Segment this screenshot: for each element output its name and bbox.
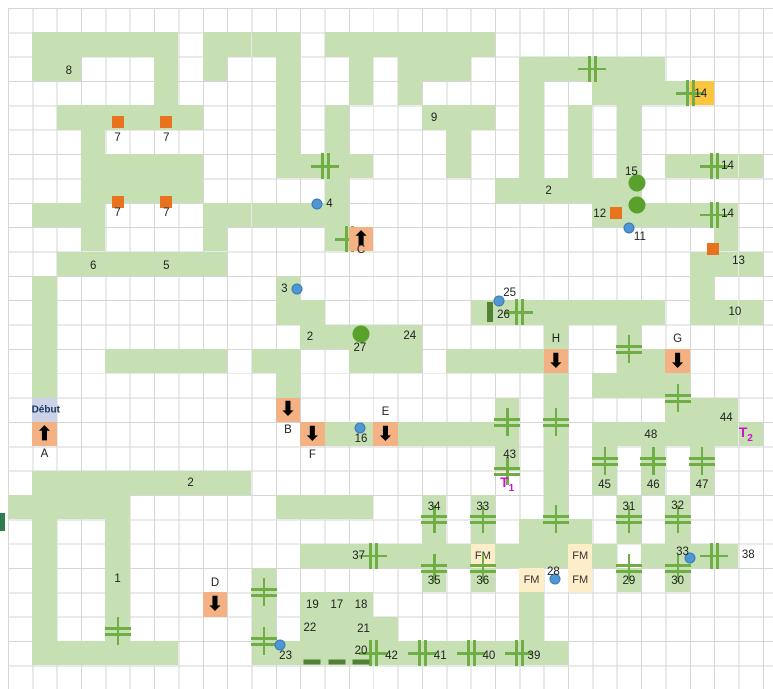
corridor-cell: [617, 422, 641, 446]
corridor-cell: [178, 154, 202, 178]
corridor-cell: [592, 300, 616, 324]
corridor-cell: [32, 57, 56, 81]
corridor-cell: [130, 252, 154, 276]
map-label-32: 32: [671, 500, 684, 512]
corridor-cell: [276, 373, 300, 397]
map-label-c: C: [357, 244, 365, 256]
corridor-cell: [446, 349, 470, 373]
map-label-27: 27: [353, 342, 366, 354]
map-label-g: G: [673, 333, 682, 345]
corridor-cell: [471, 105, 495, 129]
map-label-11: 11: [634, 231, 646, 243]
map-label-39: 39: [528, 650, 541, 662]
map-label-47: 47: [696, 479, 709, 491]
map-label-29: 29: [623, 575, 636, 587]
corridor-cell: [544, 57, 568, 81]
corridor-cell: [32, 325, 56, 349]
dungeon-map: FMFMFMFM ⬆⬇⬆⬇⬇⬇⬇⬇ 8977776543215121114141…: [0, 0, 773, 689]
corridor-cell: [446, 32, 470, 56]
corridor-cell: [325, 130, 349, 154]
corridor-cell: [568, 519, 592, 543]
corridor-cell: [398, 544, 422, 568]
corridor-cell: [641, 373, 665, 397]
corridor-cell: [349, 32, 373, 56]
map-label-28: 28: [547, 566, 560, 578]
map-label-10: 10: [728, 306, 741, 318]
corridor-cell: [32, 519, 56, 543]
door-icon: [250, 578, 278, 606]
map-label-7: 7: [163, 132, 169, 144]
corridor-cell: [105, 32, 129, 56]
corridor-cell: [32, 592, 56, 616]
corridor-cell: [32, 641, 56, 665]
stair-arrow-H: ⬇: [544, 349, 568, 373]
corridor-cell: [519, 349, 543, 373]
corridor-cell: [471, 422, 495, 446]
corridor-cell: [641, 57, 665, 81]
map-label-3: 3: [281, 283, 287, 295]
corridor-cell: [81, 203, 105, 227]
map-label-31: 31: [623, 501, 636, 513]
map-label-36: 36: [476, 575, 489, 587]
corridor-cell: [105, 544, 129, 568]
corridor-cell: [130, 349, 154, 373]
corridor-cell: [32, 544, 56, 568]
map-label-14: 14: [721, 160, 734, 172]
corridor-cell: [617, 105, 641, 129]
map-label-16: 16: [355, 433, 368, 445]
map-label-33: 33: [476, 501, 489, 513]
map-label-40: 40: [483, 650, 496, 662]
corridor-cell: [81, 495, 105, 519]
corridor-cell: [739, 300, 763, 324]
corridor-cell: [81, 154, 105, 178]
stair-arrow-F: ⬇: [300, 422, 324, 446]
corridor-cell: [276, 32, 300, 56]
corridor-cell: [325, 325, 349, 349]
corridor-cell: [203, 349, 227, 373]
map-label-13: 13: [732, 255, 745, 267]
corridor-cell: [203, 32, 227, 56]
corridor-cell: [471, 349, 495, 373]
corridor-cell: [519, 57, 543, 81]
map-label-2: 2: [307, 331, 313, 343]
orange-square-icon: [707, 243, 719, 255]
corridor-cell: [227, 471, 251, 495]
arrow-down-icon: ⬇: [304, 425, 320, 444]
map-label-18: 18: [355, 599, 368, 611]
map-label-h: H: [552, 333, 560, 345]
map-label-7: 7: [163, 207, 169, 219]
map-label-46: 46: [647, 479, 660, 491]
corridor-cell: [446, 57, 470, 81]
corridor-cell: [398, 81, 422, 105]
corridor-cell: [495, 349, 519, 373]
door-icon: [664, 384, 692, 412]
teleport-label-1: T1: [500, 474, 514, 494]
corridor-cell: [227, 203, 251, 227]
fm-cell: FM: [568, 544, 592, 568]
map-label-8: 8: [66, 65, 72, 77]
door-icon: [104, 617, 132, 645]
corridor-cell: [130, 154, 154, 178]
corridor-cell: [568, 105, 592, 129]
corridor-cell: [203, 252, 227, 276]
corridor-cell: [446, 544, 470, 568]
corridor-cell: [325, 422, 349, 446]
door-icon: [591, 447, 619, 475]
corridor-cell: [349, 154, 373, 178]
corridor-cell: [276, 300, 300, 324]
corridor-cell: [81, 641, 105, 665]
map-label-12: 12: [593, 208, 606, 220]
map-label-44: 44: [720, 412, 733, 424]
corridor-cell: [641, 81, 665, 105]
corridor-cell: [617, 57, 641, 81]
corridor-cell: [81, 178, 105, 202]
door-icon: [457, 639, 485, 667]
teleport-label-2: T2: [739, 424, 753, 444]
door-icon: [700, 542, 728, 570]
fm-cell: FM: [519, 568, 543, 592]
orange-square-icon: [610, 207, 622, 219]
corridor-cell: [617, 130, 641, 154]
dark-green-bar: [328, 659, 345, 664]
corridor-cell: [32, 495, 56, 519]
stair-arrow-B: ⬇: [276, 398, 300, 422]
corridor-cell: [349, 57, 373, 81]
corridor-cell: [276, 57, 300, 81]
corridor-cell: [446, 130, 470, 154]
map-label-20: 20: [355, 645, 368, 657]
corridor-cell: [544, 300, 568, 324]
corridor-cell: [81, 130, 105, 154]
corridor-cell: [641, 349, 665, 373]
corridor-cell: [300, 495, 324, 519]
map-label-7: 7: [114, 132, 120, 144]
corridor-cell: [568, 300, 592, 324]
corridor-cell: [130, 471, 154, 495]
corridor-cell: [81, 32, 105, 56]
map-label-24: 24: [403, 330, 416, 342]
corridor-cell: [714, 422, 738, 446]
map-label-7: 7: [114, 207, 120, 219]
map-label-14: 14: [694, 88, 707, 100]
dark-green-bar: [304, 659, 321, 664]
corridor-cell: [325, 617, 349, 641]
corridor-cell: [57, 495, 81, 519]
corridor-cell: [276, 495, 300, 519]
stair-arrow-G: ⬇: [665, 349, 689, 373]
door-icon: [639, 447, 667, 475]
corridor-cell: [203, 227, 227, 251]
map-label-a: A: [41, 448, 49, 460]
corridor-cell: [690, 300, 714, 324]
corridor-cell: [495, 544, 519, 568]
corridor-cell: [519, 130, 543, 154]
corridor-cell: [690, 398, 714, 422]
corridor-cell: [105, 252, 129, 276]
corridor-cell: [471, 32, 495, 56]
corridor-cell: [422, 32, 446, 56]
corridor-cell: [57, 471, 81, 495]
arrow-down-icon: ⬇: [207, 595, 223, 614]
corridor-cell: [300, 544, 324, 568]
corridor-cell: [32, 276, 56, 300]
corridor-cell: [519, 617, 543, 641]
corridor-cell: [252, 349, 276, 373]
corridor-cell: [544, 641, 568, 665]
map-label-17: 17: [330, 599, 343, 611]
map-label-37: 37: [352, 550, 365, 562]
corridor-cell: [32, 300, 56, 324]
corridor-cell: [373, 32, 397, 56]
map-label-22: 22: [304, 622, 317, 634]
map-label-d: D: [211, 577, 219, 589]
corridor-cell: [519, 105, 543, 129]
corridor-cell: [32, 32, 56, 56]
corridor-cell: [349, 495, 373, 519]
map-label-9: 9: [431, 112, 437, 124]
corridor-cell: [276, 81, 300, 105]
event-dot-icon: [623, 223, 634, 234]
corridor-cell: [592, 178, 616, 202]
corridor-cell: [373, 349, 397, 373]
map-label-b: B: [284, 424, 292, 436]
door-icon: [615, 335, 643, 363]
corridor-cell: [665, 422, 689, 446]
dark-green-bar: [353, 659, 370, 664]
corridor-cell: [178, 349, 202, 373]
corridor-cell: [544, 446, 568, 470]
corridor-cell: [641, 544, 665, 568]
green-circle-icon: [629, 197, 646, 214]
corridor-cell: [617, 373, 641, 397]
corridor-cell: [544, 544, 568, 568]
corridor-cell: [276, 154, 300, 178]
corridor-cell: [592, 422, 616, 446]
event-dot-icon: [312, 199, 323, 210]
corridor-cell: [178, 178, 202, 202]
corridor-cell: [300, 300, 324, 324]
corridor-cell: [276, 105, 300, 129]
corridor-cell: [592, 373, 616, 397]
corridor-cell: [617, 300, 641, 324]
map-label-41: 41: [434, 650, 447, 662]
corridor-cell: [568, 130, 592, 154]
corridor-cell: [325, 544, 349, 568]
corridor-cell: [325, 495, 349, 519]
corridor-cell: [690, 422, 714, 446]
corridor-cell: [665, 154, 689, 178]
map-label-42: 42: [385, 650, 398, 662]
corridor-cell: [154, 349, 178, 373]
corridor-cell: [422, 422, 446, 446]
corridor-cell: [349, 81, 373, 105]
corridor-cell: [130, 105, 154, 129]
corridor-cell: [57, 32, 81, 56]
corridor-cell: [32, 471, 56, 495]
corridor-cell: [178, 252, 202, 276]
map-label-48: 48: [644, 429, 657, 441]
arrow-down-icon: ⬇: [670, 352, 686, 371]
stair-arrow-E: ⬇: [373, 422, 397, 446]
map-label-45: 45: [598, 479, 611, 491]
map-label-43: 43: [503, 449, 516, 461]
corridor-cell: [154, 81, 178, 105]
edge-marker: [0, 513, 5, 531]
stair-arrow-D: ⬇: [203, 592, 227, 616]
corridor-cell: [203, 57, 227, 81]
corridor-cell: [227, 32, 251, 56]
arrow-down-icon: ⬇: [280, 400, 296, 419]
corridor-cell: [398, 32, 422, 56]
map-label-30: 30: [671, 575, 684, 587]
corridor-cell: [592, 81, 616, 105]
corridor-cell: [32, 203, 56, 227]
corridor-cell: [544, 373, 568, 397]
corridor-cell: [519, 544, 543, 568]
map-label-26: 26: [497, 309, 510, 321]
corridor-cell: [154, 641, 178, 665]
corridor-cell: [495, 178, 519, 202]
orange-square-icon: [112, 116, 124, 128]
corridor-cell: [57, 252, 81, 276]
corridor-cell: [325, 105, 349, 129]
door-icon: [542, 408, 570, 436]
corridor-cell: [690, 276, 714, 300]
corridor-cell: [32, 617, 56, 641]
arrow-down-icon: ⬇: [377, 425, 393, 444]
map-label-25: 25: [503, 287, 516, 299]
corridor-cell: [544, 471, 568, 495]
map-label-2: 2: [545, 185, 551, 197]
map-label-1: 1: [114, 573, 120, 585]
corridor-cell: [398, 57, 422, 81]
map-label-35: 35: [428, 575, 441, 587]
corridor-cell: [105, 349, 129, 373]
corridor-cell: [203, 203, 227, 227]
corridor-cell: [130, 641, 154, 665]
corridor-cell: [398, 349, 422, 373]
corridor-cell: [154, 32, 178, 56]
stair-arrow-A: ⬆: [32, 422, 56, 446]
corridor-cell: [276, 130, 300, 154]
map-label-19: 19: [306, 599, 319, 611]
corridor-cell: [130, 32, 154, 56]
map-label-f: F: [309, 449, 316, 461]
green-circle-icon: [353, 326, 370, 343]
map-label-début: Début: [32, 404, 60, 415]
corridor-cell: [105, 592, 129, 616]
map-label-4: 4: [326, 198, 332, 210]
map-label-23: 23: [279, 650, 292, 662]
corridor-cell: [641, 300, 665, 324]
map-label-38: 38: [742, 549, 755, 561]
map-label-14: 14: [721, 208, 734, 220]
corridor-cell: [105, 495, 129, 519]
map-label-5: 5: [163, 260, 169, 272]
map-label-2: 2: [187, 477, 193, 489]
corridor-cell: [373, 617, 397, 641]
corridor-cell: [446, 105, 470, 129]
door-icon: [311, 152, 339, 180]
corridor-cell: [203, 471, 227, 495]
corridor-cell: [568, 154, 592, 178]
corridor-cell: [446, 154, 470, 178]
corridor-cell: [57, 105, 81, 129]
map-label-15: 15: [625, 166, 638, 178]
map-label-34: 34: [428, 501, 441, 513]
corridor-cell: [57, 641, 81, 665]
corridor-cell: [519, 81, 543, 105]
corridor-cell: [519, 154, 543, 178]
map-label-6: 6: [90, 260, 96, 272]
corridor-cell: [739, 154, 763, 178]
corridor-cell: [276, 349, 300, 373]
corridor-cell: [8, 495, 32, 519]
corridor-cell: [665, 203, 689, 227]
corridor-cell: [252, 203, 276, 227]
corridor-cell: [617, 81, 641, 105]
corridor-cell: [690, 252, 714, 276]
event-dot-icon: [274, 639, 285, 650]
corridor-cell: [519, 519, 543, 543]
corridor-cell: [105, 519, 129, 543]
corridor-cell: [154, 154, 178, 178]
dark-green-bar: [487, 302, 493, 322]
corridor-cell: [325, 32, 349, 56]
event-dot-icon: [291, 284, 302, 295]
door-icon: [408, 639, 436, 667]
corridor-cell: [81, 105, 105, 129]
corridor-cell: [81, 227, 105, 251]
corridor-cell: [130, 178, 154, 202]
corridor-cell: [568, 178, 592, 202]
corridor-cell: [252, 32, 276, 56]
corridor-cell: [105, 471, 129, 495]
corridor-cell: [519, 592, 543, 616]
arrow-up-icon: ⬆: [37, 425, 53, 444]
corridor-cell: [446, 422, 470, 446]
map-label-21: 21: [357, 623, 370, 635]
map-label-33: 33: [676, 546, 689, 558]
orange-square-icon: [160, 116, 172, 128]
corridor-cell: [105, 154, 129, 178]
corridor-cell: [81, 471, 105, 495]
corridor-cell: [57, 203, 81, 227]
corridor-cell: [32, 373, 56, 397]
event-dot-icon: [354, 423, 365, 434]
corridor-cell: [178, 105, 202, 129]
corridor-cell: [154, 57, 178, 81]
map-label-e: E: [382, 406, 390, 418]
corridor-cell: [398, 422, 422, 446]
door-icon: [493, 408, 521, 436]
door-icon: [578, 55, 606, 83]
corridor-cell: [519, 178, 543, 202]
corridor-cell: [422, 57, 446, 81]
corridor-cell: [32, 568, 56, 592]
corridor-cell: [373, 325, 397, 349]
corridor-cell: [32, 349, 56, 373]
door-icon: [250, 627, 278, 655]
corridor-cell: [276, 203, 300, 227]
door-icon: [542, 505, 570, 533]
arrow-down-icon: ⬇: [548, 352, 564, 371]
corridor-cell: [592, 544, 616, 568]
door-icon: [688, 447, 716, 475]
